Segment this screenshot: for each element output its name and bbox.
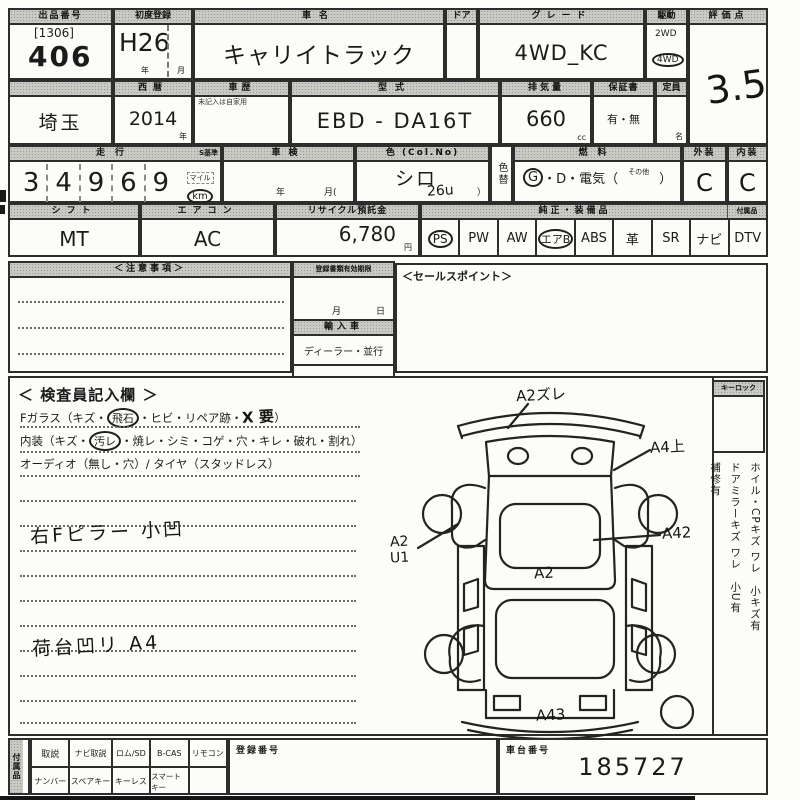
damage-diagram: A2ズレ A4上 A42 A2 U1 A2 A43 [398, 388, 713, 740]
grade-label: グレード [480, 10, 643, 25]
aircon-cell: エアコン AC [140, 203, 275, 257]
inspector-hand-note-2: 荷台凹リ A4 [31, 628, 160, 662]
ruled-line [20, 600, 356, 602]
inspection-month-unit: 月( [324, 185, 337, 198]
mileage-digit: 3 [16, 164, 48, 202]
annotation-center: A2 [534, 563, 555, 582]
drive-4wd-selected: 4WD [652, 53, 684, 67]
first-registration-cell: 初度登録 H26 年 月 [113, 8, 193, 80]
fuel-label: 燃料 [515, 147, 680, 162]
annotation-right-mid: A42 [662, 523, 692, 543]
s-standard-label: S基準 [199, 148, 218, 158]
equip-sr: SR [651, 220, 689, 257]
notice-label: ＜注意事項＞ [10, 263, 290, 278]
fuel-options: ・D・電気（ [543, 168, 618, 187]
sidebar-note-3: 補修有 [704, 462, 724, 734]
score-label: 評価点 [690, 10, 766, 25]
drive-type-cell: 駆動 2WD 4WD [645, 8, 688, 80]
drive-type-label: 駆動 [647, 10, 686, 25]
color-label: 色 (Col.No) [357, 147, 488, 162]
ruled-line [18, 353, 284, 355]
accessories-label: 付属品 [727, 205, 766, 218]
color-change-label: 色替 [494, 147, 509, 201]
car-history-cell: 車歴 未記入は自家用 [193, 80, 290, 145]
mileage-digits: 3 4 9 6 9 [16, 164, 176, 202]
circled-dirt: 汚レ [89, 431, 121, 451]
ruled-line [18, 301, 284, 303]
acc-keyless: キーレス [111, 768, 149, 795]
registration-number-box: 登録番号 [228, 738, 498, 795]
accessories-grid: 取説 ナビ取説 ロム/SD B-CAS リモコン ナンバー スペアキー キーレス… [30, 738, 228, 795]
equip-abs: ABS [574, 220, 612, 257]
fuel-gasoline-selected: G [523, 168, 543, 187]
warranty-value: 有・無 [594, 97, 653, 141]
car-name-label: 車名 [195, 10, 443, 25]
calendar-year-unit: 年 [179, 131, 187, 142]
interior-grade-cell: 内装 C [727, 145, 768, 203]
car-history-note: 未記入は自家用 [198, 97, 247, 107]
chassis-number-label: 車台番号 [506, 743, 550, 756]
auction-number-cell: 出品番号 [1306] 406 [8, 8, 113, 80]
import-car-label: 輸入車 [294, 321, 393, 336]
circled-stone-chip: 飛石 [107, 408, 139, 428]
color-close-bracket: ） [477, 185, 486, 198]
color-code-hand: 26u [427, 182, 454, 199]
ruled-line [20, 575, 356, 577]
sales-point-box: ＜セールスポイント＞ [395, 263, 768, 373]
aircon-value: AC [142, 220, 273, 257]
shift-cell: シフト MT [8, 203, 140, 257]
acc-empty [188, 768, 226, 795]
year-unit: 年 [141, 65, 149, 76]
shift-label: シフト [10, 205, 138, 220]
annotation-left-1: A2 [390, 534, 409, 551]
exterior-label: 外装 [684, 147, 725, 162]
ruled-line [20, 625, 356, 627]
validity-label: 登録書類有効期限 [294, 263, 393, 278]
equip-airbag: エアB [538, 229, 574, 249]
auction-number: 406 [28, 40, 92, 73]
inspection-cell: 車検 年 月( [222, 145, 355, 203]
sidebar-note-2: ドアミラーキズ ワレ 小U有 [724, 462, 744, 734]
annotation-left-2: U1 [390, 550, 410, 567]
validity-month-unit: 月 [332, 304, 341, 317]
sidebar-notes: ホイル・CPキズ ワレ 小キズ有 ドアミラーキズ ワレ 小U有 補修有 [714, 462, 764, 734]
prefecture-cell: 埼玉 [8, 80, 113, 145]
equipment-cell: 純正・装備品 付属品 PS PW AW エアB ABS 革 SR ナビ DTV [420, 203, 768, 257]
ruled-line [20, 475, 360, 477]
fuel-close-bracket: ） [659, 168, 672, 187]
mile-unit-label: マイル [187, 172, 214, 184]
prefecture-value: 埼玉 [10, 97, 111, 145]
inspector-hand-note-1: 右Fピラー 小凹 [29, 514, 185, 549]
displacement-label: 排気量 [502, 82, 590, 97]
ruled-line [20, 722, 356, 724]
first-registration-value: H26 [119, 28, 170, 57]
ruled-line [20, 675, 356, 677]
recycle-fee-value: 6,780 [339, 222, 396, 246]
registration-number-label: 登録番号 [236, 743, 280, 756]
grade-cell: グレード 4WD_KC [478, 8, 645, 80]
fuel-cell: 燃料 G ・D・電気（ その他 ） [513, 145, 682, 203]
acc-bcas: B-CAS [149, 740, 187, 766]
model-code-label: 型式 [292, 82, 498, 97]
warranty-cell: 保証書 有・無 [592, 80, 655, 145]
capacity-cell: 定員 名 [655, 80, 688, 145]
acc-remote: リモコン [188, 740, 226, 766]
divider [167, 25, 169, 77]
registration-validity-box: 登録書類有効期限 月 日 輸入車 ディーラー・並行 左H ・ 右H [292, 261, 395, 390]
front-glass-check-line: Fガラス（キズ・飛石・ヒビ・リペア跡・X 要） [20, 406, 286, 428]
aircon-label: エアコン [142, 205, 273, 220]
equipment-label: 純正・装備品 [422, 205, 727, 218]
car-history-label: 車歴 [195, 82, 288, 97]
validity-day-unit: 日 [376, 304, 385, 317]
equip-navi: ナビ [689, 220, 727, 257]
score-value: 3.5 [703, 61, 769, 113]
equip-dtv: DTV [728, 220, 766, 257]
ruled-line [20, 426, 360, 428]
sidebar-note-1: ホイル・CPキズ ワレ 小キズ有 [744, 462, 764, 734]
mileage-unit-stack: マイル km [182, 165, 218, 204]
displacement-unit: cc [577, 133, 586, 142]
score-cell: 評価点 3.5 [688, 8, 768, 145]
capacity-label: 定員 [657, 82, 686, 97]
accessories-vertical-cell: 付属品 [8, 738, 30, 795]
audio-tire-check-line: オーディオ（無し・穴）/ タイヤ（スタッドレス） [20, 456, 279, 472]
equip-pw: PW [458, 220, 496, 257]
scan-edge-line [0, 796, 695, 800]
displacement-cell: 排気量 660 cc [500, 80, 592, 145]
interior-check-line: 内装（キズ・汚レ・焼レ・シミ・コゲ・穴・キレ・破れ・割れ） [20, 431, 363, 451]
auction-code: [1306] [34, 26, 74, 40]
inspection-year-unit: 年 [276, 185, 285, 198]
mileage-digit: 6 [113, 164, 145, 202]
km-unit-selected: km [187, 189, 213, 204]
capacity-unit: 名 [675, 131, 683, 142]
annotation-bottom: A43 [536, 705, 566, 725]
model-code-value: EBD - DA16T [292, 97, 498, 145]
dealer-parallel-option: ディーラー・並行 [294, 336, 393, 366]
calendar-year-cell: 西暦 2014 年 [113, 80, 193, 145]
glass-hand-mark: X 要 [242, 405, 275, 428]
prefecture-header [10, 82, 111, 97]
warranty-label: 保証書 [594, 82, 653, 97]
accessories-vertical-label: 付属品 [10, 740, 23, 793]
month-unit: 月 [177, 65, 185, 76]
ruled-line [20, 500, 356, 502]
recycle-fee-label: リサイクル預託金 [277, 205, 418, 220]
door-cell: ドア [445, 8, 478, 80]
acc-rom-sd: ロム/SD [111, 740, 149, 766]
inspection-label: 車検 [224, 147, 353, 162]
interior-label: 内装 [729, 147, 766, 162]
auction-number-label: 出品番号 [10, 10, 111, 25]
exterior-grade-cell: 外装 C [682, 145, 727, 203]
equip-aw: AW [497, 220, 535, 257]
drive-2wd-option: 2WD [655, 29, 677, 39]
equipment-items: PS PW AW エアB ABS 革 SR ナビ DTV [422, 220, 766, 257]
shift-value: MT [10, 220, 138, 257]
equip-ps: PS [428, 230, 453, 248]
car-name-cell: 車名 キャリイトラック [193, 8, 445, 80]
recycle-fee-cell: リサイクル預託金 6,780 円 [275, 203, 420, 257]
mileage-digit: 9 [81, 164, 113, 202]
car-name-value: キャリイトラック [195, 25, 443, 80]
color-change-cell: 色替 [490, 145, 513, 203]
calendar-year-label: 西暦 [115, 82, 191, 97]
annotation-right-top: A4上 [649, 435, 685, 458]
fuel-value: G ・D・電気（ その他 ） [523, 167, 672, 187]
ruled-line [20, 700, 356, 702]
acc-number-plate: ナンバー [32, 768, 68, 795]
exterior-grade: C [683, 161, 726, 205]
ruled-line [20, 451, 360, 453]
mileage-digit: 4 [48, 164, 80, 202]
mileage-digit: 9 [146, 164, 176, 202]
grade-value: 4WD_KC [480, 25, 643, 80]
chassis-number-box: 車台番号 185727 [498, 738, 768, 795]
equip-leather: 革 [612, 220, 650, 257]
fuel-other-label: その他 [628, 167, 649, 177]
scan-mark [0, 205, 5, 214]
recycle-fee-unit: 円 [404, 242, 412, 253]
annotation-top: A2ズレ [515, 383, 566, 407]
sales-point-label: ＜セールスポイント＞ [402, 268, 512, 284]
acc-smart-key: スマートキー [149, 768, 187, 795]
notice-box: ＜注意事項＞ [8, 261, 292, 373]
model-code-cell: 型式 EBD - DA16T [290, 80, 500, 145]
interior-grade: C [728, 161, 767, 205]
ruled-line [20, 550, 356, 552]
ruled-line [18, 327, 284, 329]
inspector-title: ＜ 検査員記入欄 ＞ [18, 384, 158, 405]
mileage-label: 走行 [10, 147, 220, 162]
mileage-cell: 走行 S基準 3 4 9 6 9 マイル km [8, 145, 222, 203]
acc-navi-manual: ナビ取説 [68, 740, 110, 766]
acc-spare-key: スペアキー [68, 768, 110, 795]
color-cell: 色 (Col.No) シロ 26u ） [355, 145, 490, 203]
key-lock-box: キーロック [712, 380, 765, 453]
key-lock-label: キーロック [714, 382, 763, 397]
door-label: ドア [447, 10, 476, 25]
scan-mark [0, 190, 6, 202]
acc-manual: 取説 [32, 740, 68, 766]
first-registration-label: 初度登録 [115, 10, 191, 25]
